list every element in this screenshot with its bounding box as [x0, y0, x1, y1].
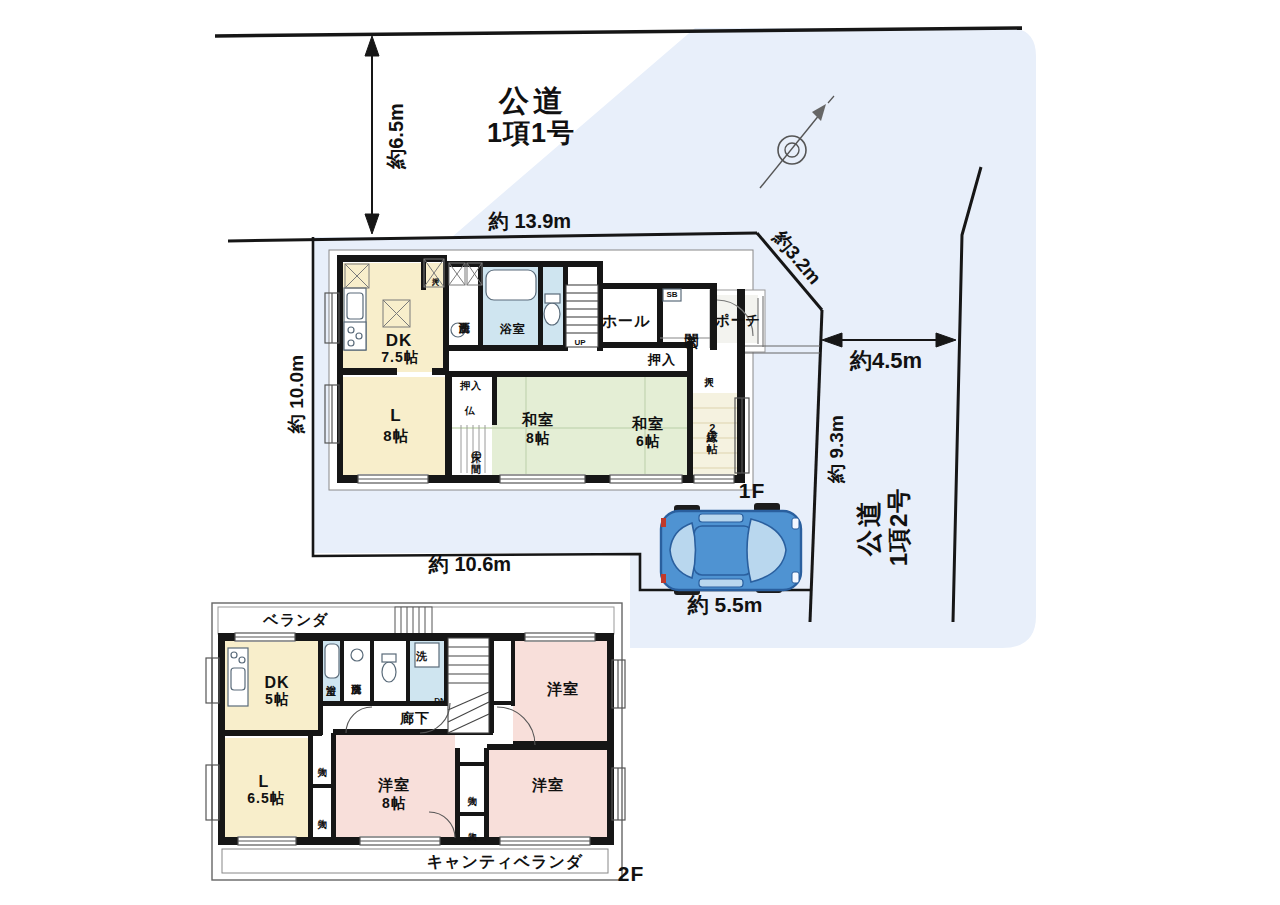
site-graphics	[0, 0, 1280, 905]
room-1f-washitsu8: 和室	[522, 411, 554, 428]
room-2f-cantilever-veranda: キャンティベランダ	[427, 853, 583, 871]
stairs-2f	[448, 638, 489, 733]
room-1f-living-size: 8帖	[383, 427, 408, 444]
room-2f-living: L	[259, 773, 270, 791]
closet-1f-washitsu6: 押入	[648, 353, 676, 368]
room-1f-washitsu6: 和室	[632, 415, 664, 432]
room-2f-veranda: ベランダ	[263, 611, 328, 628]
room-1f-butsuma: 仏	[465, 405, 476, 417]
floorplan-2f	[206, 603, 625, 880]
room-1f-yokushitsu: 浴室	[500, 323, 526, 337]
room-2f-dk: DK	[264, 674, 289, 692]
room-2f-yoshitsu8: 洋室	[378, 776, 410, 793]
room-2f-corridor: 廊下	[400, 710, 430, 726]
car-icon	[661, 503, 801, 595]
room-2f-yoshitsu-top: 洋室	[547, 680, 579, 697]
room-2f-yoshitsu8-size: 8帖	[382, 795, 406, 811]
road-right-class: 1項2号	[885, 488, 913, 567]
road-top-name: 公道	[499, 84, 567, 119]
dim-left-depth: 約 10.0m	[286, 355, 308, 433]
siteplan-floorplan-image: 公道 1項1号 約6.5m 約 13.9m 約3.2m 約4.5m 約 9.3m…	[0, 0, 1280, 905]
stairwell-top-icon	[395, 607, 432, 635]
room-2f-yoshitsu-right: 洋室	[532, 776, 564, 793]
road-right-name: 公道	[855, 488, 885, 567]
dim-right-depth: 約 9.3m	[826, 415, 848, 483]
room-1f-dk-size: 7.5帖	[381, 349, 418, 365]
floor2-label: 2F	[618, 862, 645, 886]
shoebox-label: SB	[666, 290, 677, 299]
room-1f-hall: ホール	[602, 312, 651, 329]
room-1f-tokonoma: 床の間	[470, 444, 482, 455]
road-top-class: 1項1号	[487, 118, 575, 149]
dim-top-width: 約 13.9m	[489, 210, 571, 233]
room-2f-living-size: 6.5帖	[247, 790, 284, 806]
room-1f-washitsu6-size: 6帖	[636, 433, 660, 449]
dim-top-vertical: 約6.5m	[385, 103, 408, 169]
dim-parking: 約 5.5m	[688, 593, 763, 617]
room-2f-laundry: 洗	[416, 650, 428, 663]
room-1f-washitsu8-size: 8帖	[526, 430, 550, 446]
dim-bottom-width: 約 10.6m	[429, 553, 511, 576]
room-1f-dk: DK	[386, 331, 413, 351]
room-2f-dk-size: 5帖	[265, 691, 289, 707]
floorplan-1f	[325, 250, 820, 490]
room-1f-porch: ポーチ	[715, 312, 761, 328]
dim-right-width: 約4.5m	[850, 348, 922, 373]
stairs-1f-up-label: UP	[574, 338, 585, 347]
floor1-label: 1F	[739, 479, 766, 503]
closet-1f-center: 押入	[460, 380, 482, 392]
room-1f-hiroen: 広縁2帖	[706, 422, 719, 434]
room-1f-living: L	[390, 406, 401, 426]
road-right-label: 公道 1項2号	[855, 488, 912, 567]
stairs-2f-dn-label: DN	[434, 696, 446, 705]
